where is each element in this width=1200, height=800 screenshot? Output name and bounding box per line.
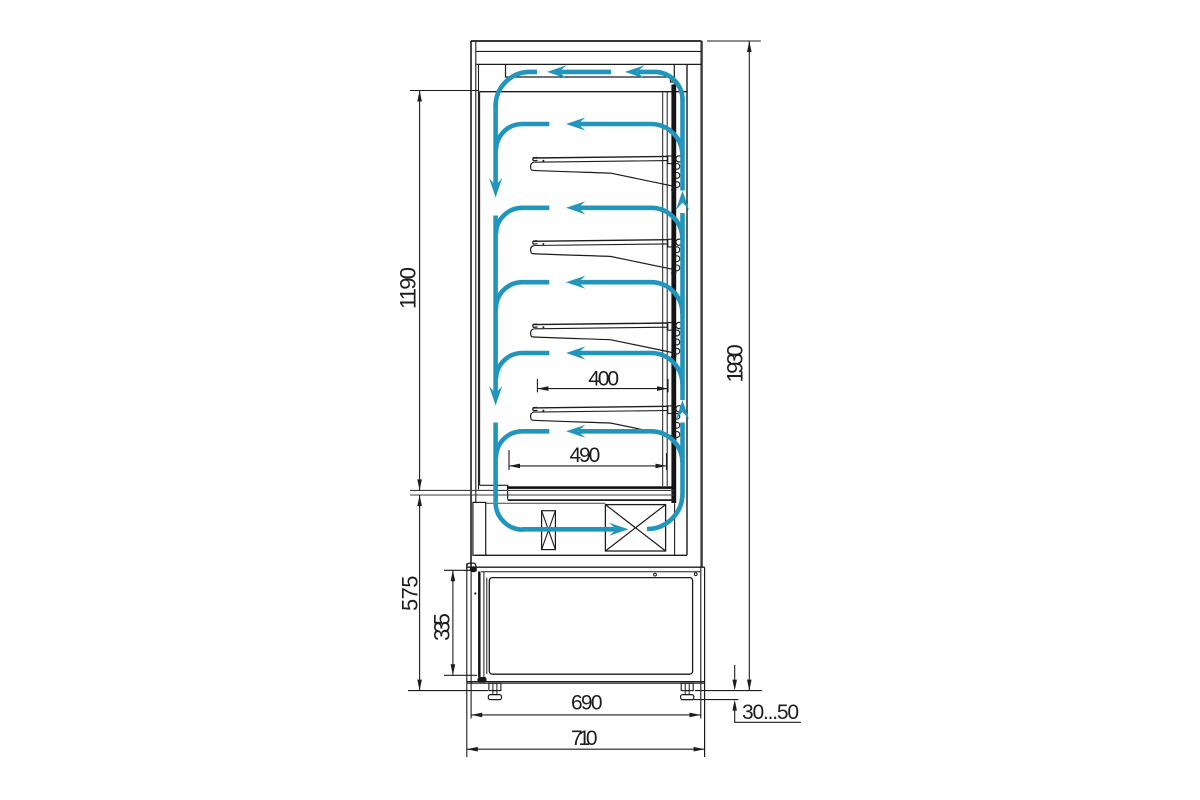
- svg-text:1930: 1930: [723, 344, 748, 382]
- svg-text:575: 575: [398, 576, 423, 612]
- svg-text:30...50: 30...50: [742, 701, 799, 724]
- svg-text:400: 400: [588, 368, 619, 391]
- svg-text:710: 710: [571, 727, 598, 750]
- svg-text:1190: 1190: [396, 267, 421, 309]
- svg-text:690: 690: [571, 692, 603, 715]
- svg-text:490: 490: [570, 444, 601, 467]
- svg-text:335: 335: [429, 613, 454, 641]
